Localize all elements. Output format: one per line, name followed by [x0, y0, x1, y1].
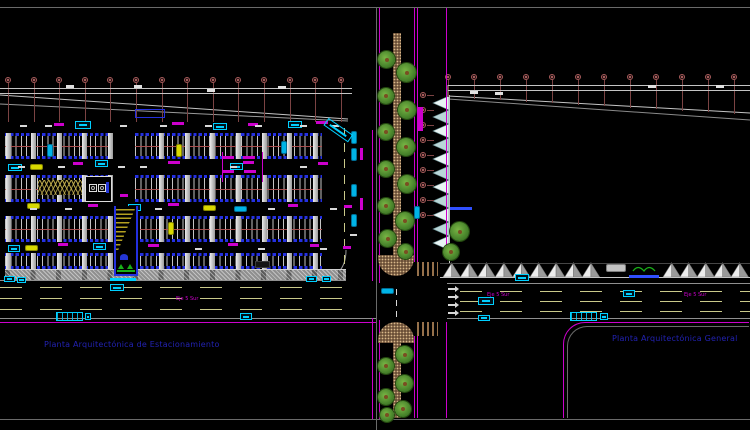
- car: [351, 184, 357, 197]
- ramp-diagonal-line: [0, 95, 348, 119]
- text-smudge: [58, 243, 68, 246]
- text-smudge: [73, 162, 83, 165]
- tree: [396, 212, 414, 230]
- structural-column: [210, 133, 215, 159]
- text-smudge: [120, 194, 128, 197]
- structural-column: [82, 216, 87, 242]
- facade-column-tick: [427, 200, 434, 201]
- grid-axis-line: [604, 80, 605, 106]
- drawing-line: [414, 8, 415, 262]
- structural-column: [159, 253, 164, 269]
- car: [203, 205, 216, 211]
- darkbox: [255, 261, 270, 268]
- drawing-line: [0, 322, 376, 323]
- ramp-wall: [114, 274, 138, 276]
- structural-column: [108, 216, 113, 242]
- sawtooth-shade-right: [539, 263, 548, 277]
- structural-column: [159, 216, 164, 242]
- roof-diagonal-line: [448, 99, 750, 120]
- vertical-text-smudge: [360, 148, 363, 160]
- tree: [378, 51, 395, 68]
- drawing-line: [447, 283, 750, 284]
- tree: [378, 88, 394, 104]
- drawing-line: [448, 90, 750, 91]
- right-plan-title: Planta Arquitectónica General: [612, 334, 738, 343]
- scalebox: [570, 312, 597, 321]
- structural-column: [185, 216, 190, 242]
- drawing-line: [417, 8, 418, 262]
- drawing-line: [0, 309, 345, 310]
- drawing-line: [372, 130, 373, 281]
- dimension-badge: [213, 123, 227, 130]
- text-smudge: [222, 156, 234, 159]
- structural-column: [236, 216, 241, 242]
- bottom-border-line: [0, 419, 750, 420]
- grid-axis-line: [578, 80, 579, 105]
- structural-column: [185, 253, 190, 269]
- drawing-line: [0, 298, 345, 299]
- direction-arrow-icon: [155, 208, 162, 210]
- tree: [398, 101, 416, 119]
- facade-column-bubble: [420, 212, 426, 218]
- sawtooth-shade-right: [689, 263, 698, 277]
- tree: [398, 244, 413, 259]
- dimension-badge: [4, 276, 15, 282]
- drawing-line: [262, 152, 263, 182]
- dimension-badge: [240, 313, 252, 320]
- structural-column: [262, 216, 267, 242]
- ramp-diagonal-line: [0, 104, 348, 121]
- text-smudge: [88, 204, 98, 207]
- text-smudge: [244, 170, 256, 173]
- cross: [417, 322, 438, 336]
- structural-column: [313, 175, 318, 202]
- sawtooth-shade-left: [495, 263, 504, 277]
- facade-column-tick: [427, 140, 434, 141]
- car: [351, 131, 357, 144]
- text-smudge: [318, 162, 328, 165]
- dimension-badge: [8, 245, 20, 252]
- cad-drawing-canvas: Planta Arquitectónica de Estacionamiento…: [0, 0, 750, 430]
- ramp-direction-arrow-icon: [118, 264, 124, 269]
- scalebox: [56, 312, 83, 321]
- drawing-line: [0, 88, 352, 89]
- structural-column: [31, 253, 36, 269]
- sawtooth-shade-right: [574, 263, 583, 277]
- car: [351, 214, 357, 227]
- direction-arrow-icon: [320, 248, 327, 250]
- structural-column: [185, 175, 190, 202]
- tree: [379, 230, 396, 247]
- direction-arrow-icon: [30, 208, 37, 210]
- sawtooth-shade-left: [478, 263, 487, 277]
- drawing-line: [0, 93, 352, 94]
- dimension-dash: [495, 92, 503, 95]
- ramp-threshold-mark: [117, 270, 135, 272]
- direction-arrow-icon: [205, 125, 212, 127]
- car: [25, 245, 38, 251]
- structural-column: [185, 133, 190, 159]
- stair-zigzag-hatch: [38, 180, 82, 195]
- text-smudge: [228, 243, 238, 246]
- direction-arrow-icon: [58, 166, 65, 168]
- elevator-core: [85, 176, 112, 202]
- dimension-badge: [478, 315, 490, 321]
- structural-column: [236, 253, 241, 269]
- facade-column-bubble: [420, 167, 426, 173]
- direction-arrow-icon: [300, 166, 307, 168]
- direction-arrow-icon: [300, 125, 307, 127]
- structural-column: [31, 216, 36, 242]
- sawtooth-shade-left: [680, 263, 689, 277]
- sawtooth-shade-right: [740, 263, 749, 277]
- tree: [396, 375, 413, 392]
- tree: [380, 408, 394, 422]
- direction-arrow-icon: [18, 166, 25, 168]
- stall-end-markers: [140, 216, 322, 219]
- direction-arrow-icon: [350, 234, 357, 236]
- sawtooth-shade-left: [547, 263, 556, 277]
- sawtooth-shade-right: [672, 263, 681, 277]
- text-smudge: [243, 161, 254, 164]
- drawing-line: [449, 95, 450, 263]
- machine-unit-icon: [98, 184, 106, 192]
- drawing-line: [440, 263, 750, 264]
- drawing-line: [417, 336, 418, 418]
- sawtooth-shade-right: [591, 263, 600, 277]
- direction-arrow-icon: [448, 288, 455, 290]
- ramp-direction-arrow-icon: [127, 264, 133, 269]
- tree: [378, 198, 394, 214]
- structural-column: [287, 175, 292, 202]
- dimension-badge: [75, 121, 91, 129]
- direction-arrow-icon: [118, 166, 125, 168]
- vehicle-ramp: [114, 206, 138, 276]
- core-shaft: [106, 182, 109, 193]
- road-label-eje-5-sur: Eje 5 Sur: [684, 292, 706, 298]
- text-smudge: [168, 203, 179, 206]
- ramp-shadow: [116, 208, 136, 250]
- ramp-landing: [120, 254, 128, 260]
- dimension-dash: [207, 89, 215, 92]
- sawtooth-shade-left: [582, 263, 591, 277]
- structural-column: [31, 133, 36, 159]
- planter: [378, 322, 414, 343]
- drawing-line: [0, 287, 345, 288]
- text-smudge: [310, 244, 319, 247]
- tree: [378, 124, 394, 140]
- direction-arrow-icon: [448, 312, 455, 314]
- car: [351, 148, 357, 161]
- facade-column-bubble: [420, 92, 426, 98]
- direction-arrow-icon: [330, 208, 337, 210]
- direction-arrow-icon: [195, 248, 202, 250]
- structural-column: [6, 175, 11, 202]
- tree: [450, 222, 469, 241]
- text-smudge: [168, 161, 180, 164]
- car: [234, 206, 247, 212]
- drawing-line: [372, 318, 373, 419]
- text-smudge: [222, 170, 234, 173]
- facade-column-tick: [427, 155, 434, 156]
- drawing-line: [446, 8, 447, 258]
- sawtooth-shade-left: [443, 263, 452, 277]
- sawtooth-shade-right: [556, 263, 565, 277]
- tree: [395, 401, 411, 417]
- tree: [397, 63, 416, 82]
- drawing-line: [0, 280, 346, 281]
- stall-end-markers: [140, 253, 322, 256]
- sawtooth-shade-right: [469, 263, 478, 277]
- tree: [378, 161, 394, 177]
- drawing-line: [446, 322, 447, 418]
- text-smudge: [343, 246, 351, 249]
- tree: [378, 358, 394, 374]
- direction-arrow-icon: [140, 166, 147, 168]
- text-smudge: [54, 123, 64, 126]
- machine-unit-icon: [89, 184, 97, 192]
- text-smudge: [629, 275, 659, 278]
- direction-arrow-icon: [230, 166, 237, 168]
- tree: [397, 138, 415, 156]
- structural-column: [57, 133, 62, 159]
- text-smudge: [450, 207, 472, 210]
- structural-column: [82, 253, 87, 269]
- left-plan-title: Planta Arquitectónica de Estacionamiento: [44, 340, 220, 349]
- sawtooth-shade-left: [530, 263, 539, 277]
- vertical-text-smudge: [360, 198, 363, 210]
- direction-arrow-icon: [120, 125, 127, 127]
- car: [281, 141, 287, 154]
- structural-column: [287, 133, 292, 159]
- road-label-eje-5-sur: Eje 5 Sur: [176, 296, 198, 302]
- structural-column: [210, 175, 215, 202]
- structural-column: [313, 253, 318, 269]
- car: [414, 206, 420, 219]
- sawtooth-shade-right: [487, 263, 496, 277]
- dimension-dash: [134, 85, 142, 88]
- tree: [398, 175, 416, 193]
- drawing-line: [414, 336, 415, 418]
- drawing-line: [460, 311, 750, 312]
- sawtooth-shade-right: [452, 263, 461, 277]
- dimension-dash: [278, 86, 286, 89]
- facade-column-tick: [427, 110, 434, 111]
- structural-column: [313, 216, 318, 242]
- structural-column: [108, 133, 113, 159]
- car: [30, 164, 43, 170]
- structural-column: [287, 253, 292, 269]
- structural-column: [31, 175, 36, 202]
- structural-column: [6, 133, 11, 159]
- dimension-badge: [306, 276, 317, 282]
- car: [168, 222, 174, 235]
- direction-arrow-icon: [258, 248, 265, 250]
- structural-column: [236, 133, 241, 159]
- structural-column: [57, 216, 62, 242]
- road-label-eje-5-sur: Eje 5 Sur: [487, 292, 509, 298]
- structural-column: [57, 253, 62, 269]
- structural-column: [159, 133, 164, 159]
- structural-column: [6, 216, 11, 242]
- structural-column: [210, 216, 215, 242]
- viewport-divider-line: [376, 7, 377, 430]
- dimension-badge: [600, 313, 608, 320]
- structural-column: [236, 175, 241, 202]
- facade-column-bubble: [420, 152, 426, 158]
- direction-arrow-icon: [448, 304, 455, 306]
- sawtooth-shade-right: [706, 263, 715, 277]
- dimension-badge: [17, 277, 26, 283]
- facade-column-bubble: [420, 182, 426, 188]
- sawtooth-shade-left: [460, 263, 469, 277]
- car: [381, 288, 394, 294]
- bluebox: [135, 109, 165, 118]
- drawing-line: [460, 301, 750, 302]
- dimension-dash: [648, 85, 656, 88]
- text-smudge: [172, 122, 184, 125]
- cross: [417, 262, 438, 276]
- dimension-badge: [110, 284, 124, 291]
- sidewalk: [5, 269, 346, 280]
- drawing-line: [447, 318, 750, 319]
- car: [176, 144, 182, 157]
- facade-column-bubble: [420, 137, 426, 143]
- drawing-line: [396, 285, 397, 317]
- tree: [396, 346, 413, 363]
- direction-arrow-icon: [268, 208, 275, 210]
- text-smudge: [288, 204, 298, 207]
- drawing-line: [448, 85, 750, 86]
- facade-column-tick: [427, 170, 434, 171]
- text-smudge: [110, 278, 136, 281]
- structural-column: [313, 133, 318, 159]
- structural-column: [287, 216, 292, 242]
- dimension-dash: [716, 85, 724, 88]
- dimension-badge: [478, 297, 494, 305]
- text-smudge: [344, 205, 352, 208]
- tree: [378, 389, 394, 405]
- text-smudge: [148, 244, 159, 247]
- facade-column-tick: [427, 185, 434, 186]
- facade-column-tick: [427, 95, 434, 96]
- facade-column-tick: [427, 125, 434, 126]
- sawtooth-shade-left: [714, 263, 723, 277]
- direction-arrow-icon: [20, 125, 27, 127]
- dimension-dash: [470, 91, 478, 94]
- roof-diagonal-line: [448, 96, 750, 113]
- direction-arrow-icon: [255, 125, 262, 127]
- bus-on-ramp: [323, 118, 353, 143]
- structural-column: [82, 133, 87, 159]
- facade-column-tick: [427, 215, 434, 216]
- direction-arrow-icon: [160, 125, 167, 127]
- dimension-badge: [95, 160, 108, 167]
- drawing-line: [440, 277, 750, 278]
- stall-end-markers: [140, 239, 322, 242]
- ramp-wall: [136, 206, 138, 276]
- structural-column: [210, 253, 215, 269]
- direction-arrow-icon: [45, 125, 52, 127]
- structural-column: [6, 253, 11, 269]
- grid-axis-line: [552, 80, 553, 103]
- speed-bump-squiggle: [633, 268, 655, 272]
- graycar: [606, 264, 626, 272]
- sawtooth-shade-right: [723, 263, 732, 277]
- dimension-badge: [93, 243, 106, 250]
- sawtooth-shade-left: [663, 263, 672, 277]
- dimension-badge: [623, 290, 635, 297]
- top-border-line: [0, 7, 750, 8]
- direction-arrow-icon: [65, 208, 72, 210]
- text-smudge: [243, 156, 255, 159]
- sawtooth-shade-left: [565, 263, 574, 277]
- busstop: [418, 107, 423, 131]
- sawtooth-shade-left: [731, 263, 740, 277]
- structural-column: [108, 253, 113, 269]
- dimension-dash: [66, 85, 74, 88]
- structural-column: [159, 175, 164, 202]
- dimension-badge: [515, 274, 529, 281]
- drawing-line: [344, 128, 345, 280]
- dimension-badge: [85, 313, 91, 320]
- tree: [443, 244, 459, 260]
- direction-arrow-icon: [448, 296, 455, 298]
- car: [47, 144, 53, 157]
- sawtooth-shade-right: [504, 263, 513, 277]
- sawtooth-shade-left: [697, 263, 706, 277]
- dimension-badge: [322, 276, 331, 282]
- facade-column-bubble: [420, 197, 426, 203]
